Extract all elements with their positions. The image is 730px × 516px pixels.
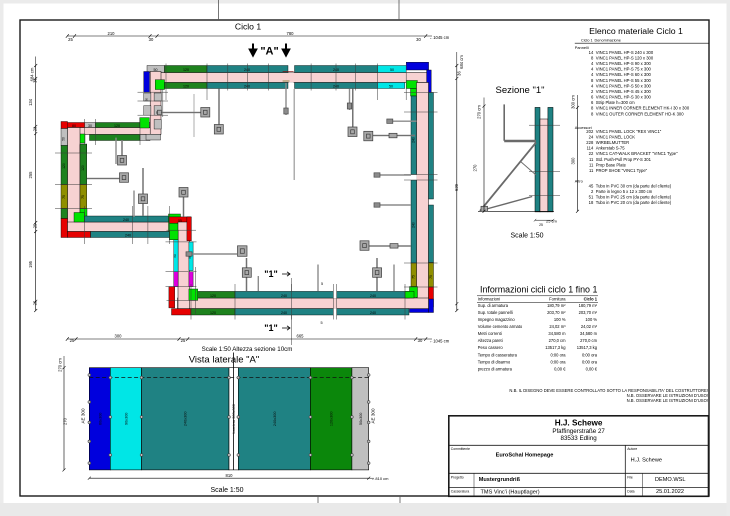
- svg-text:0:00 ora: 0:00 ora: [550, 359, 566, 364]
- svg-text:75: 75: [412, 275, 416, 279]
- svg-text:270,0 cm: 270,0 cm: [549, 338, 566, 343]
- svg-text:"1": "1": [264, 269, 278, 279]
- svg-text:240x300: 240x300: [184, 412, 188, 427]
- svg-text:Pfaffingerstraße 27: Pfaffingerstraße 27: [552, 428, 605, 435]
- svg-text:VINC1 PANEL HP-S 55 x 300: VINC1 PANEL HP-S 55 x 300: [596, 78, 652, 83]
- svg-text:H.J. Schewe: H.J. Schewe: [631, 457, 662, 463]
- svg-text:240: 240: [244, 68, 250, 72]
- svg-text:240: 240: [244, 85, 250, 89]
- svg-text:Pannelli: Pannelli: [575, 45, 589, 50]
- svg-text:Informazioni: Informazioni: [478, 297, 500, 302]
- svg-text:240: 240: [281, 311, 287, 315]
- svg-text:90x300: 90x300: [124, 413, 128, 425]
- svg-text:120: 120: [183, 68, 189, 72]
- svg-text:VINC1 PANEL HP-S 60 x 300: VINC1 PANEL HP-S 60 x 300: [596, 72, 652, 77]
- svg-text:50: 50: [62, 137, 66, 141]
- svg-text:300: 300: [571, 157, 576, 165]
- svg-text:Casseratura: Casseratura: [451, 490, 470, 494]
- svg-text:Prop Base Plate: Prop Base Plate: [596, 162, 627, 167]
- svg-text:100 %: 100 %: [585, 317, 597, 322]
- svg-text:Tubo in PVC 20 cm (da parte de: Tubo in PVC 20 cm (da parte del cliente): [596, 200, 672, 205]
- svg-text:VINC1 PANEL LOCK "REX VINC1": VINC1 PANEL LOCK "REX VINC1": [596, 129, 662, 134]
- svg-text:120: 120: [210, 294, 216, 298]
- svg-text:VINC1 OUTER CORNER ELEMENT HD-: VINC1 OUTER CORNER ELEMENT HD-K 300: [596, 111, 685, 116]
- svg-text:780: 780: [287, 31, 295, 36]
- svg-text:VINC1 INNER CORNER ELEMENT HK-: VINC1 INNER CORNER ELEMENT HK-I 30 x 300: [596, 106, 690, 111]
- svg-text:Sup. totale pannelli: Sup. totale pannelli: [478, 310, 513, 315]
- svg-text:629: 629: [454, 183, 459, 191]
- svg-text:25: 25: [68, 37, 73, 42]
- svg-text:20: 20: [32, 126, 37, 131]
- svg-text:VINC1 PANEL HP-S 120 x 300: VINC1 PANEL HP-S 120 x 300: [596, 55, 654, 60]
- svg-text:5: 5: [320, 321, 322, 325]
- svg-text:25: 25: [32, 223, 37, 228]
- svg-text:80: 80: [72, 124, 76, 128]
- svg-text:WIRBELMUTTER: WIRBELMUTTER: [596, 140, 630, 145]
- svg-text:120x300: 120x300: [330, 412, 334, 427]
- svg-text:684 cm: 684 cm: [459, 55, 464, 69]
- svg-text:Sezione "1": Sezione "1": [496, 85, 545, 96]
- svg-text:255: 255: [28, 171, 33, 179]
- svg-text:665: 665: [297, 334, 305, 339]
- svg-text:AE 300: AE 300: [371, 408, 376, 424]
- svg-text:36: 36: [32, 78, 37, 83]
- svg-text:203,70 m²: 203,70 m²: [579, 310, 598, 315]
- svg-text:240: 240: [370, 294, 376, 298]
- svg-text:18: 18: [589, 200, 594, 205]
- svg-text:120: 120: [210, 311, 216, 315]
- svg-text:Committente: Committente: [451, 447, 470, 451]
- svg-text:Parte in legno 5 x 12 x 300 cm: Parte in legno 5 x 12 x 300 cm: [596, 189, 653, 194]
- svg-text:36: 36: [457, 71, 462, 76]
- svg-text:120: 120: [114, 124, 120, 128]
- svg-text:30: 30: [416, 37, 421, 42]
- svg-text:45: 45: [589, 183, 594, 188]
- svg-text:"1": "1": [264, 323, 278, 333]
- svg-text:VINC1 PANEL HP-S 50 x 300: VINC1 PANEL HP-S 50 x 300: [596, 83, 652, 88]
- svg-text:Volume cemento armato: Volume cemento armato: [478, 324, 523, 329]
- svg-text:EuroSchal Homepage: EuroSchal Homepage: [496, 453, 554, 459]
- svg-text:30: 30: [149, 37, 154, 42]
- svg-text:VINC1 PANEL HP-S 45 x 300: VINC1 PANEL HP-S 45 x 300: [596, 89, 652, 94]
- svg-text:Scale 1:50 Altezza sezione 1: Scale 1:50 Altezza sezione 10cm: [202, 346, 293, 353]
- svg-text:34,580 m: 34,580 m: [580, 331, 598, 336]
- svg-text:Vista laterale "A": Vista laterale "A": [189, 354, 259, 365]
- svg-text:203,70 m²: 203,70 m²: [547, 310, 566, 315]
- svg-text:←810 cm: ←810 cm: [371, 476, 389, 481]
- svg-text:VINC1 PANEL HP-S 90 x 300: VINC1 PANEL HP-S 90 x 300: [596, 61, 652, 66]
- svg-text:240: 240: [412, 222, 416, 228]
- svg-text:50: 50: [390, 68, 394, 72]
- svg-text:Progetto: Progetto: [451, 476, 464, 480]
- svg-text:240: 240: [125, 234, 131, 238]
- svg-text:H.J. Schewe: H.J. Schewe: [555, 418, 603, 427]
- svg-text:AE 300: AE 300: [81, 408, 86, 424]
- svg-text:Autore: Autore: [627, 447, 637, 451]
- svg-text:13517,3 kg: 13517,3 kg: [577, 345, 598, 350]
- svg-text:Std. Push-Pull Prop PY-S 301: Std. Push-Pull Prop PY-S 301: [596, 157, 652, 162]
- svg-text:300 cm: 300 cm: [571, 95, 576, 109]
- svg-text:VINC1 PANEL HP-S 240 x 300: VINC1 PANEL HP-S 240 x 300: [596, 50, 654, 55]
- svg-text:0:00 ora: 0:00 ora: [582, 359, 598, 364]
- svg-text:270: 270: [473, 164, 478, 172]
- svg-text:N.B. OSSERVARE LE ISTRUZIONI D: N.B. OSSERVARE LE ISTRUZIONI D'USO!: [627, 398, 708, 403]
- svg-text:75: 75: [62, 195, 66, 199]
- svg-text:24: 24: [589, 134, 594, 139]
- svg-text:180,79 m²: 180,79 m²: [547, 303, 566, 308]
- svg-text:25 cm: 25 cm: [546, 219, 558, 224]
- svg-text:Data: Data: [627, 490, 634, 494]
- svg-text:30: 30: [418, 338, 423, 343]
- svg-text:Ciclo 1: Ciclo 1: [581, 39, 593, 43]
- svg-text:←1045 cm: ←1045 cm: [429, 35, 450, 40]
- svg-text:120: 120: [62, 163, 66, 169]
- svg-text:240: 240: [281, 294, 287, 298]
- svg-text:DEMO.WSL: DEMO.WSL: [655, 477, 685, 483]
- svg-text:30: 30: [88, 124, 92, 128]
- svg-text:Tubo in PVC 25 cm (da parte de: Tubo in PVC 25 cm (da parte del cliente): [596, 194, 672, 199]
- svg-text:Metri correnti: Metri correnti: [478, 331, 502, 336]
- svg-text:240x300: 240x300: [273, 412, 277, 427]
- svg-text:File: File: [627, 476, 633, 480]
- svg-text:0:00 ora: 0:00 ora: [550, 352, 566, 357]
- svg-text:11: 11: [589, 157, 594, 162]
- svg-text:240: 240: [412, 137, 416, 143]
- svg-text:24,02 m³: 24,02 m³: [581, 324, 598, 329]
- svg-text:Altezza pareti: Altezza pareti: [478, 338, 503, 343]
- svg-text:Lamiera 300x300: Lamiera 300x300: [232, 404, 236, 433]
- svg-text:Scale 1:50: Scale 1:50: [210, 487, 243, 494]
- svg-text:25: 25: [181, 338, 186, 343]
- svg-text:←1045 cm: ←1045 cm: [429, 338, 450, 343]
- svg-text:195: 195: [28, 260, 33, 268]
- svg-text:Ankerstab S-75: Ankerstab S-75: [596, 146, 626, 151]
- svg-text:0:00 ora: 0:00 ora: [582, 352, 598, 357]
- svg-text:0,00 €: 0,00 €: [554, 366, 566, 371]
- svg-text:50x300: 50x300: [359, 413, 363, 425]
- svg-text:270: 270: [63, 417, 68, 425]
- svg-text:228: 228: [586, 140, 594, 145]
- svg-text:VINC1 PANEL HP-S 75 x 300: VINC1 PANEL HP-S 75 x 300: [596, 67, 652, 72]
- svg-text:Denominazione: Denominazione: [595, 39, 621, 43]
- svg-text:270 cm: 270 cm: [58, 358, 63, 372]
- svg-text:51: 51: [589, 194, 594, 199]
- svg-text:50: 50: [389, 85, 393, 89]
- svg-text:240: 240: [123, 218, 129, 222]
- svg-text:0,00 €: 0,00 €: [586, 366, 598, 371]
- svg-text:30: 30: [145, 98, 149, 102]
- svg-text:180,79 m²: 180,79 m²: [579, 303, 598, 308]
- svg-text:Tempo di disarmo: Tempo di disarmo: [478, 359, 511, 364]
- svg-text:"A": "A": [260, 46, 278, 58]
- svg-text:Scale 1:50: Scale 1:50: [510, 233, 543, 240]
- svg-text:Altro: Altro: [575, 178, 583, 183]
- svg-text:Informazioni cicli ciclo 1 fi: Informazioni cicli ciclo 1 fino 1: [480, 285, 597, 295]
- svg-text:Tubo in PVC 30 cm (da parte de: Tubo in PVC 30 cm (da parte del cliente): [596, 183, 672, 188]
- svg-text:25: 25: [70, 338, 75, 343]
- svg-text:14: 14: [589, 50, 594, 55]
- svg-text:Mustergrundriß: Mustergrundriß: [479, 477, 521, 483]
- svg-text:Peso cassero: Peso cassero: [478, 345, 504, 350]
- svg-text:100 %: 100 %: [554, 317, 566, 322]
- svg-text:VINC1 PANEL HP-S 30 x 300: VINC1 PANEL HP-S 30 x 300: [596, 95, 652, 100]
- svg-text:Ciclo 1: Ciclo 1: [235, 21, 261, 31]
- svg-text:13517,3 kg: 13517,3 kg: [545, 345, 566, 350]
- svg-text:90: 90: [173, 254, 177, 258]
- svg-text:300: 300: [115, 334, 123, 339]
- svg-text:210: 210: [108, 31, 116, 36]
- svg-text:120: 120: [183, 85, 189, 89]
- svg-text:Ciclo 1: Ciclo 1: [584, 297, 598, 302]
- svg-text:60x300: 60x300: [98, 413, 102, 425]
- svg-text:11: 11: [589, 168, 594, 173]
- svg-text:34,580 m: 34,580 m: [548, 331, 566, 336]
- svg-text:810: 810: [226, 473, 234, 478]
- svg-text:VINC1 PANEL LOCK: VINC1 PANEL LOCK: [596, 134, 636, 139]
- svg-text:PROP SHOE "VINC1 Type": PROP SHOE "VINC1 Type": [596, 168, 648, 173]
- svg-text:Sup. di armatura: Sup. di armatura: [478, 303, 509, 308]
- svg-text:75: 75: [429, 275, 433, 279]
- svg-text:270,0 cm: 270,0 cm: [580, 338, 597, 343]
- svg-text:270 cm: 270 cm: [476, 105, 481, 119]
- svg-text:25: 25: [539, 223, 543, 227]
- svg-text:11: 11: [589, 162, 594, 167]
- svg-text:75: 75: [81, 195, 85, 199]
- svg-text:Strip Plate h=300 cm: Strip Plate h=300 cm: [596, 100, 635, 105]
- svg-text:5: 5: [321, 282, 323, 286]
- svg-text:prezzo di armatura: prezzo di armatura: [478, 366, 513, 371]
- svg-text:24,02 m³: 24,02 m³: [549, 324, 566, 329]
- svg-text:25: 25: [32, 300, 37, 305]
- svg-text:202: 202: [586, 129, 594, 134]
- svg-text:Fornitura: Fornitura: [549, 297, 566, 302]
- svg-text:22: 22: [589, 151, 594, 156]
- svg-text:Impegno magazzino: Impegno magazzino: [478, 317, 516, 322]
- svg-text:VINC1 CAT-WALK BRACKET "VINC1: VINC1 CAT-WALK BRACKET "VINC1 Type": [596, 151, 678, 156]
- svg-text:25.01.2022: 25.01.2022: [656, 489, 684, 495]
- svg-text:TMS Vinc'i (Hauptlager): TMS Vinc'i (Hauptlager): [481, 489, 540, 495]
- svg-text:Elenco materiale Ciclo 1: Elenco materiale Ciclo 1: [589, 26, 683, 36]
- svg-text:240: 240: [370, 311, 376, 315]
- svg-text:120: 120: [81, 165, 85, 171]
- svg-text:Tempo di casseratura: Tempo di casseratura: [478, 352, 518, 357]
- svg-text:114: 114: [587, 146, 594, 151]
- svg-text:83533 Edling: 83533 Edling: [561, 435, 598, 442]
- svg-text:134: 134: [28, 98, 33, 106]
